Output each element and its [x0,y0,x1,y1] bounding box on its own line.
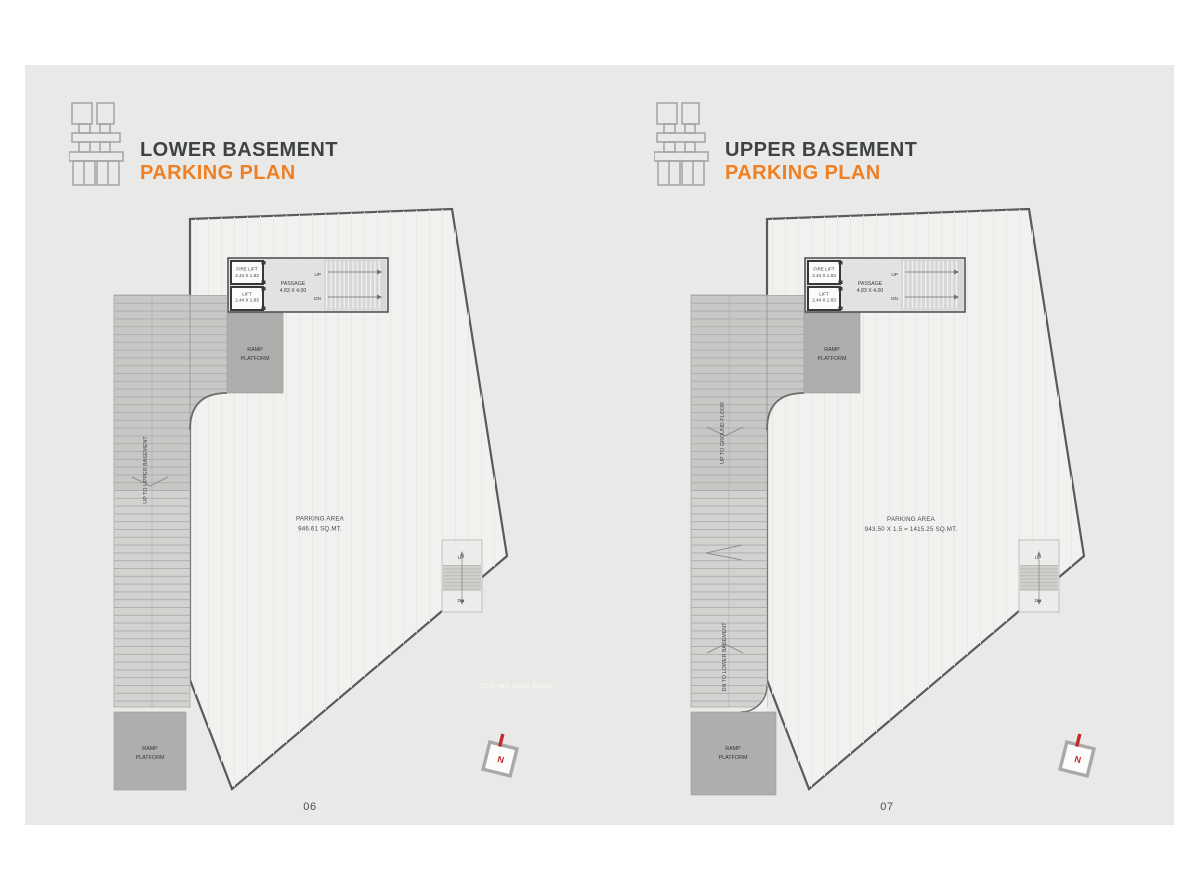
fire-lift-label: FIRE LIFT [236,267,257,272]
stairbox-dn-label: DN [458,598,465,604]
road-label: 12.00 MT. WIDE ROAD [480,683,553,690]
passage-label: PASSAGE [858,281,883,287]
ramp-down-direction-label: DN TO LOWER BASEMENT [722,622,728,692]
upper-basement-plan: FIRE LIFT 2.44 X 1.83 LIFT 2.44 X 1.83 P… [691,209,1097,813]
parking-area-value: 943.50 X 1.5 = 1415.25 SQ.MT. [865,526,958,533]
ramp-platform-lower-label1: RAMP [725,746,741,752]
stair-up-label: UP [891,272,898,278]
ramp-platform-upper-label1: RAMP [247,347,263,353]
page-number: 06 [303,801,316,813]
parking-area-label: PARKING AREA [887,516,936,523]
ramp-platform-upper-label2: PLATFORM [241,356,270,362]
parking-area-value: 946.61 SQ.MT. [298,526,342,533]
page-number: 07 [880,801,893,813]
ramp-up-direction-label: UP TO GROUND FLOOR [720,402,726,464]
fire-lift-label: FIRE LIFT [813,267,834,272]
ramp-platform-lower-label1: RAMP [142,746,158,752]
lower-basement-plan: FIRE LIFT 2.44 X 1.83 LIFT 2.44 X 1.83 P… [114,209,552,813]
parking-area-label: PARKING AREA [296,516,345,523]
stair-up-label: UP [314,272,321,278]
fire-lift-dim: 2.44 X 1.83 [812,273,836,278]
passage-label: PASSAGE [281,281,306,287]
lift-dim: 2.44 X 1.83 [235,298,259,303]
drawing-sheet: { "sheet": { "background": "#ffffff", "p… [0,0,1200,892]
fire-lift-dim: 2.44 X 1.83 [235,273,259,278]
lift-label: LIFT [242,292,252,297]
ramp-platform-upper-label1: RAMP [824,347,840,353]
ramp-platform-upper-label2: PLATFORM [818,356,847,362]
stairbox-up-label: UP [458,555,465,561]
ramp-platform-lower-label2: PLATFORM [719,755,748,761]
ramp-platform-lower-label2: PLATFORM [136,755,165,761]
floor-plans-canvas: FIRE LIFT 2.44 X 1.83 LIFT 2.44 X 1.83 P… [0,0,1200,892]
ramp-platform-lower [691,712,776,795]
lift-label: LIFT [819,292,829,297]
stair-dn-label: DN [314,296,321,302]
stair-dn-label: DN [891,296,898,302]
passage-dim: 4.83 X 4.00 [857,288,884,294]
stairbox-dn-label: DN [1035,598,1042,604]
ramp-up-direction-label: UP TO UPPER BASEMENT [143,436,149,504]
passage-dim: 4.83 X 4.00 [280,288,307,294]
lift-dim: 2.44 X 1.83 [812,298,836,303]
stairbox-up-label: UP [1035,555,1042,561]
